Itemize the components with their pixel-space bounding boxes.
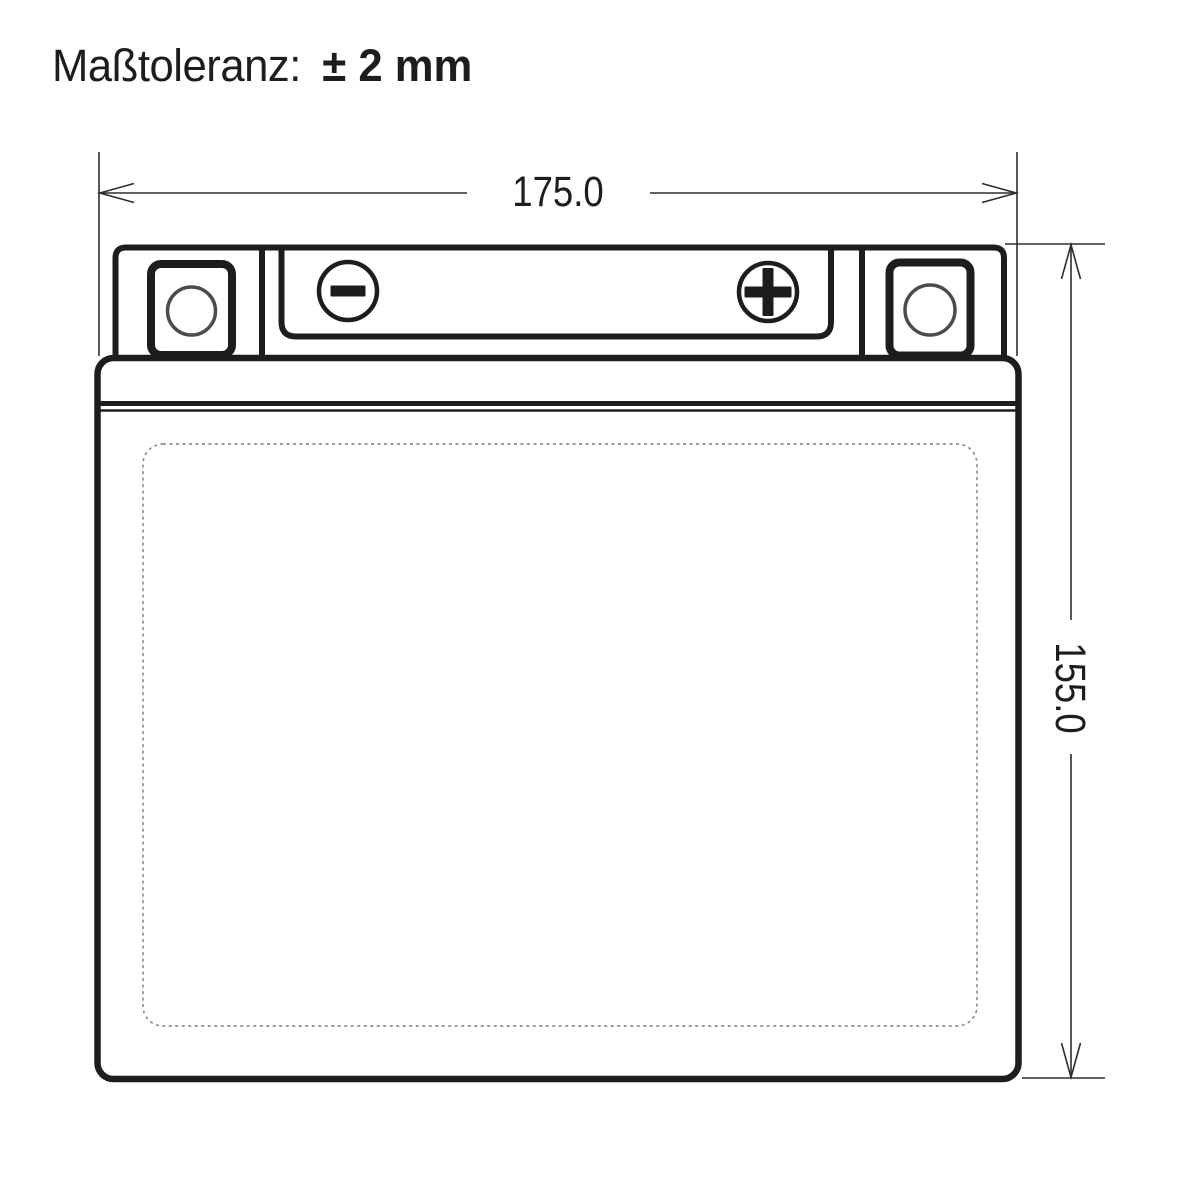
mount-hole-left-icon <box>168 287 216 335</box>
plus-icon-vertical-bar <box>763 268 774 316</box>
battery-technical-drawing: 175.0 155.0 <box>0 0 1200 1200</box>
minus-icon <box>331 286 366 297</box>
battery-top-platform <box>116 248 1005 360</box>
negative-terminal <box>319 262 377 320</box>
battery-outline <box>98 248 1019 1080</box>
positive-terminal <box>739 263 797 321</box>
mount-lug-right <box>890 263 971 356</box>
mount-lug-left <box>151 264 232 355</box>
width-dimension-label: 175.0 <box>512 168 603 215</box>
mount-hole-right-icon <box>905 285 955 335</box>
battery-body <box>98 358 1019 1079</box>
height-dimension-label: 155.0 <box>1046 642 1093 733</box>
label-area-dashed-outline <box>143 444 977 1026</box>
width-dimension: 175.0 <box>99 152 1017 356</box>
